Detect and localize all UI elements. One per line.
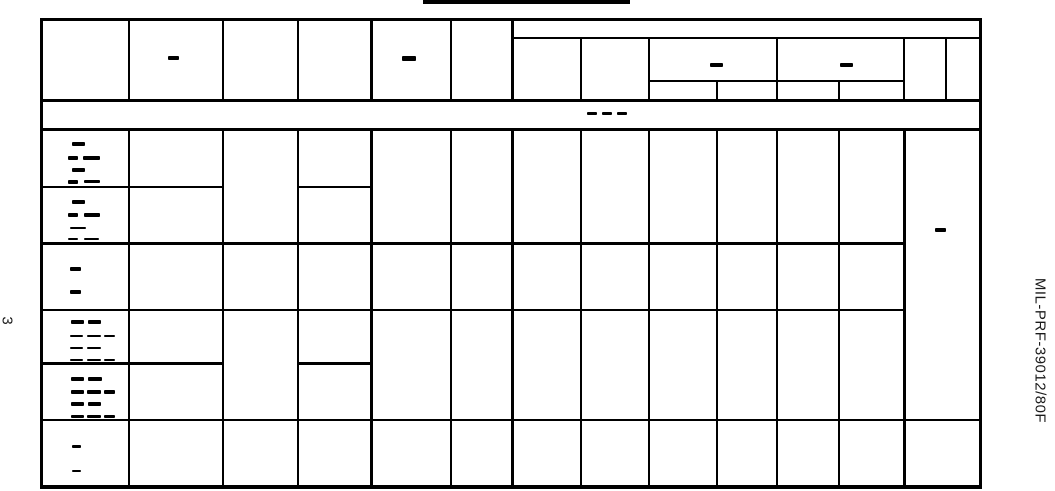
body-col-rule — [648, 128, 650, 486]
row2-3-divider — [40, 242, 903, 245]
row4-label-dash — [88, 320, 101, 324]
row3-label-dash — [70, 290, 81, 294]
document-page: 3 MIL-PRF-39012/80F — [0, 0, 1055, 491]
row2-label-dash — [70, 227, 86, 229]
row5-label-dash — [104, 390, 115, 394]
row4-label-dash — [104, 335, 115, 337]
row4-5-divider-col4 — [297, 362, 370, 365]
body-col-rule — [222, 128, 224, 486]
body-col-rule — [838, 128, 840, 486]
header-col-rule — [297, 18, 299, 100]
row4-label-dash — [70, 359, 83, 361]
row1-label-dash — [72, 142, 85, 146]
row4-label-dash — [87, 347, 101, 349]
row2-label-dash — [72, 200, 85, 204]
body-col-rule — [370, 128, 373, 486]
row1-2-divider-left — [40, 186, 222, 188]
page-number: 3 — [0, 314, 16, 328]
row1-2-divider-col4 — [297, 186, 370, 188]
row6-label-dash — [72, 470, 81, 472]
row3-label-dash — [70, 267, 81, 271]
row5-label-dash — [71, 377, 84, 381]
row4-label-dash — [104, 359, 115, 361]
header-col2-dash — [168, 56, 179, 60]
header-subcol-rule — [838, 80, 840, 100]
header-subcol-rule — [580, 37, 582, 100]
row4-label-dash — [87, 335, 101, 337]
spanner-dash-1 — [587, 112, 597, 115]
row5-label-dash — [87, 415, 101, 418]
row2-label-dash — [84, 238, 99, 240]
body-col-rule — [511, 128, 514, 486]
row5-label-dash — [88, 377, 102, 381]
row1-label-dash — [68, 156, 78, 160]
row1-label-dash — [83, 156, 100, 160]
header-subcol-rule — [716, 80, 718, 100]
header-col-rule — [450, 18, 452, 100]
row4-label-dash — [87, 359, 101, 361]
row6-label-dash — [72, 445, 81, 448]
table-title-underline — [423, 0, 630, 4]
document-id: MIL-PRF-39012/80F — [1032, 256, 1049, 446]
row1-label-dash — [84, 180, 100, 183]
row4-label-dash — [71, 320, 84, 324]
spanner-dash-2 — [602, 112, 612, 115]
header-subcol-rule — [945, 37, 947, 100]
row5-label-dash — [71, 415, 84, 418]
table-border-right — [979, 18, 982, 489]
header-group1-dash — [710, 63, 723, 67]
row4-5-divider-left — [40, 362, 222, 365]
header-subcol-rule — [903, 37, 905, 100]
header-col-rule — [128, 18, 130, 100]
spanner-dash-3 — [617, 112, 627, 115]
notes-cell-dash — [935, 228, 946, 232]
header-col-rule — [370, 18, 373, 100]
row5-label-dash — [87, 390, 101, 394]
body-col-rule — [776, 128, 778, 486]
row3-4-divider — [40, 309, 903, 311]
row5-label-dash — [71, 390, 84, 394]
row1-label-dash — [72, 168, 85, 172]
row1-label-dash — [68, 180, 78, 184]
row2-label-dash — [68, 238, 78, 240]
row5-label-dash — [104, 415, 115, 418]
body-col-rule — [128, 128, 130, 486]
body-col-rule — [450, 128, 452, 486]
row2-label-dash — [84, 213, 100, 217]
body-col-rule — [903, 128, 906, 486]
row4-label-dash — [70, 347, 83, 349]
header-col-rule — [511, 18, 514, 100]
row4-label-dash — [70, 335, 83, 337]
header-col5-dash — [402, 56, 416, 61]
body-col-rule — [716, 128, 718, 486]
row5-label-dash — [88, 402, 101, 406]
header-subcol-rule — [776, 37, 778, 100]
body-col-rule — [297, 128, 299, 486]
row5-label-dash — [71, 402, 84, 406]
header-group2-dash — [840, 63, 853, 67]
row2-label-dash — [68, 213, 78, 217]
body-col-rule — [580, 128, 582, 486]
table-border-left — [40, 18, 43, 488]
header-subcol-rule — [648, 37, 650, 100]
header-col-rule — [222, 18, 224, 100]
